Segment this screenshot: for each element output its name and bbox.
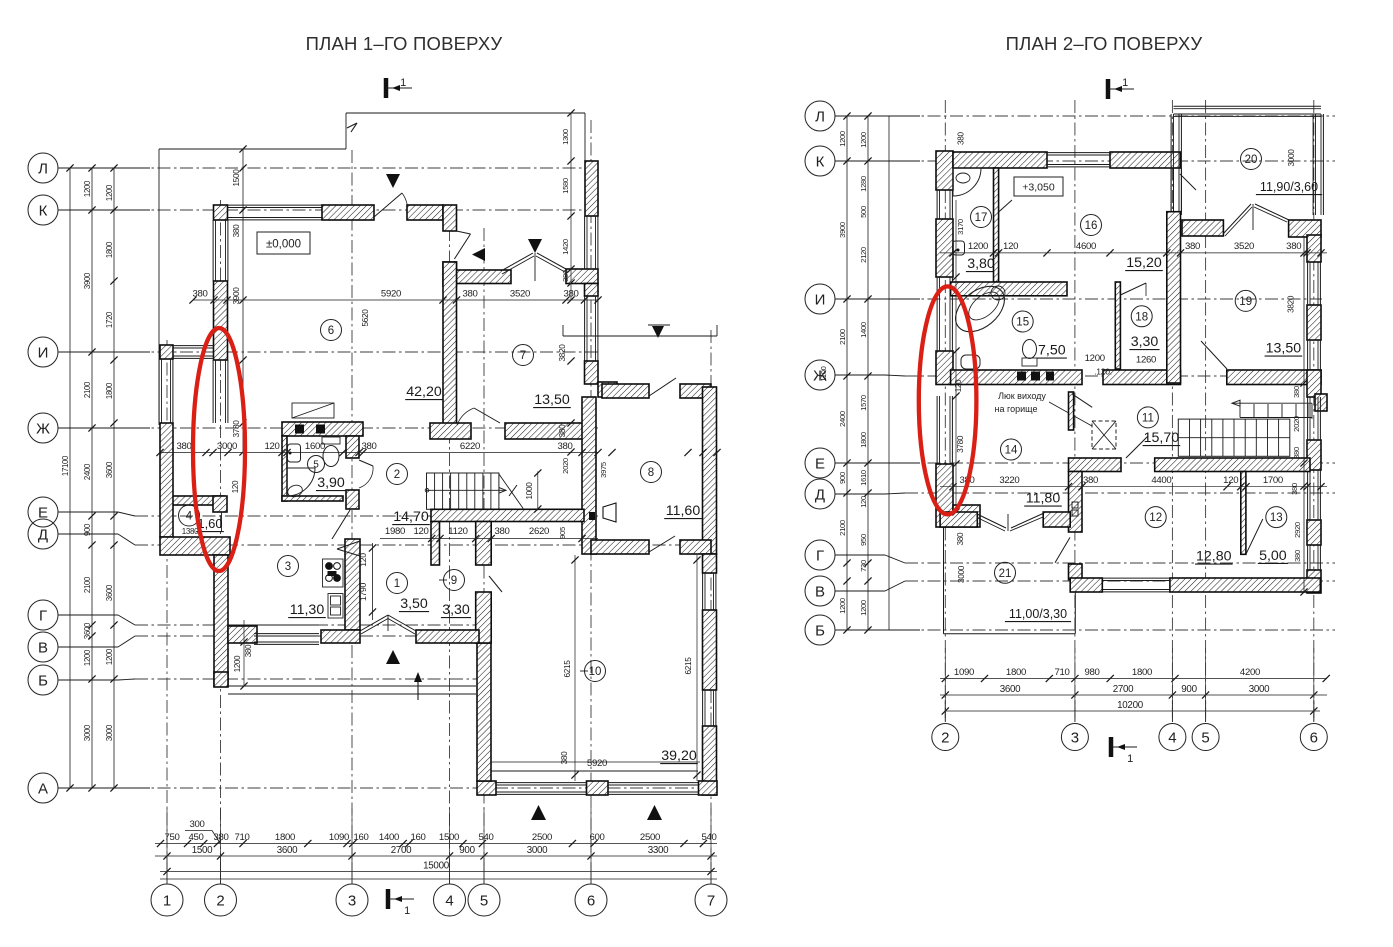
svg-text:980: 980	[1084, 667, 1099, 678]
svg-text:900: 900	[83, 523, 92, 536]
svg-text:4: 4	[445, 892, 453, 909]
svg-text:1100: 1100	[819, 366, 828, 381]
svg-text:120: 120	[1003, 241, 1018, 252]
svg-text:И: И	[38, 344, 49, 361]
svg-text:540: 540	[478, 832, 493, 843]
svg-text:380: 380	[1292, 447, 1301, 459]
svg-text:5: 5	[313, 460, 319, 471]
svg-text:3900: 3900	[838, 222, 847, 238]
svg-text:11,80: 11,80	[1026, 491, 1061, 507]
svg-text:380: 380	[558, 424, 567, 438]
svg-text:7,50: 7,50	[1038, 343, 1066, 359]
svg-text:3900: 3900	[232, 287, 241, 305]
svg-text:8: 8	[648, 467, 654, 479]
svg-text:3820: 3820	[1287, 295, 1296, 313]
svg-text:3: 3	[285, 561, 291, 573]
svg-text:380: 380	[1292, 386, 1301, 398]
svg-text:380: 380	[1286, 241, 1301, 252]
svg-text:1400: 1400	[379, 832, 399, 843]
svg-text:3: 3	[1071, 729, 1079, 746]
svg-text:ПЛАН 2–ГО ПОВЕРХУ: ПЛАН 2–ГО ПОВЕРХУ	[1006, 33, 1203, 54]
svg-text:5: 5	[1201, 729, 1209, 746]
svg-text:120: 120	[264, 441, 279, 452]
svg-text:ПЛАН 1–ГО ПОВЕРХУ: ПЛАН 1–ГО ПОВЕРХУ	[306, 33, 503, 54]
svg-text:3,50: 3,50	[400, 596, 428, 612]
svg-text:4400: 4400	[1151, 475, 1171, 486]
svg-text:2620: 2620	[529, 526, 549, 537]
svg-text:4600: 4600	[1076, 241, 1096, 252]
svg-text:2020: 2020	[561, 458, 570, 474]
svg-text:1280: 1280	[859, 176, 868, 192]
svg-text:1800: 1800	[1006, 667, 1026, 678]
svg-text:1: 1	[163, 892, 171, 909]
svg-text:1420: 1420	[561, 239, 570, 255]
svg-text:3000: 3000	[527, 845, 548, 856]
svg-text:1700: 1700	[1263, 475, 1283, 486]
svg-text:+3,050: +3,050	[1022, 182, 1055, 194]
svg-text:3,80: 3,80	[967, 256, 995, 272]
svg-text:1980: 1980	[385, 526, 405, 537]
svg-text:3520: 3520	[1234, 241, 1254, 252]
svg-text:3,90: 3,90	[317, 475, 345, 491]
svg-text:на горище: на горище	[995, 404, 1038, 414]
svg-text:1800: 1800	[859, 432, 868, 448]
svg-text:1800: 1800	[1132, 667, 1152, 678]
svg-text:2100: 2100	[838, 520, 847, 536]
svg-text:120: 120	[231, 480, 240, 493]
svg-text:1090: 1090	[329, 832, 349, 843]
svg-text:1200: 1200	[233, 655, 242, 672]
svg-text:120: 120	[859, 496, 868, 508]
svg-text:2: 2	[941, 729, 949, 746]
svg-text:Б: Б	[38, 672, 48, 689]
svg-text:11,00/3,30: 11,00/3,30	[1009, 607, 1067, 621]
svg-text:3600: 3600	[105, 461, 114, 478]
svg-text:Л: Л	[815, 108, 825, 125]
svg-text:3520: 3520	[510, 289, 530, 300]
svg-text:1800: 1800	[105, 382, 114, 399]
svg-text:380: 380	[494, 526, 509, 537]
svg-text:3000: 3000	[217, 441, 237, 452]
svg-text:540: 540	[701, 832, 716, 843]
svg-text:Д: Д	[815, 486, 825, 503]
svg-text:2400: 2400	[83, 463, 92, 480]
svg-text:1200: 1200	[859, 132, 868, 148]
svg-text:3600: 3600	[277, 845, 298, 856]
svg-text:710: 710	[234, 832, 249, 843]
svg-text:380: 380	[361, 441, 376, 452]
svg-text:5920: 5920	[381, 289, 401, 300]
svg-text:900: 900	[459, 845, 475, 856]
svg-text:10200: 10200	[1117, 700, 1144, 711]
svg-text:Г: Г	[816, 547, 824, 564]
svg-text:Л: Л	[38, 160, 48, 177]
svg-text:1500: 1500	[232, 169, 241, 187]
svg-text:5920: 5920	[587, 758, 607, 769]
svg-text:10: 10	[589, 666, 602, 678]
svg-text:6: 6	[328, 325, 334, 337]
svg-text:2400: 2400	[838, 411, 847, 427]
svg-text:900: 900	[1181, 684, 1197, 695]
svg-text:3900: 3900	[83, 272, 92, 289]
svg-text:3975: 3975	[599, 462, 608, 478]
svg-text:2020: 2020	[1292, 416, 1301, 432]
svg-text:1: 1	[1122, 77, 1128, 89]
svg-text:12: 12	[1149, 512, 1162, 524]
svg-text:6220: 6220	[460, 441, 480, 452]
svg-text:14,70: 14,70	[393, 509, 429, 525]
svg-text:380: 380	[956, 131, 965, 145]
svg-text:950: 950	[859, 534, 868, 546]
svg-text:21: 21	[999, 568, 1012, 580]
svg-text:1570: 1570	[859, 395, 868, 411]
svg-text:2100: 2100	[83, 381, 92, 398]
svg-text:2700: 2700	[391, 845, 412, 856]
svg-text:11,30: 11,30	[290, 602, 325, 618]
svg-text:7: 7	[707, 892, 715, 909]
svg-text:1610: 1610	[859, 470, 868, 486]
svg-text:К: К	[816, 153, 825, 170]
svg-text:15: 15	[1016, 317, 1029, 329]
svg-text:17100: 17100	[61, 455, 70, 476]
svg-text:120: 120	[1223, 475, 1238, 486]
svg-text:11,60: 11,60	[666, 503, 701, 519]
svg-text:15,20: 15,20	[1126, 255, 1162, 271]
svg-text:3780: 3780	[956, 435, 965, 453]
svg-text:1580: 1580	[561, 178, 570, 194]
svg-text:380: 380	[176, 441, 191, 452]
svg-text:1200: 1200	[105, 184, 114, 201]
svg-text:Ж: Ж	[36, 420, 50, 437]
svg-text:14: 14	[1005, 445, 1018, 457]
svg-text:160: 160	[410, 832, 425, 843]
svg-text:А: А	[38, 780, 48, 797]
svg-text:3820: 3820	[558, 344, 567, 362]
svg-text:1800: 1800	[275, 832, 295, 843]
svg-text:600: 600	[589, 832, 604, 843]
svg-text:1: 1	[394, 578, 400, 590]
svg-text:380: 380	[561, 270, 570, 282]
svg-text:2700: 2700	[1113, 684, 1134, 695]
svg-text:2100: 2100	[838, 329, 847, 345]
svg-text:Б: Б	[815, 622, 825, 639]
svg-text:5,00: 5,00	[1259, 548, 1287, 564]
svg-text:В: В	[38, 639, 48, 656]
svg-text:±0,000: ±0,000	[266, 239, 301, 251]
svg-text:120: 120	[413, 526, 428, 537]
svg-text:39,20: 39,20	[661, 748, 697, 764]
svg-text:3220: 3220	[999, 475, 1019, 486]
svg-text:4: 4	[1168, 729, 1176, 746]
svg-text:160: 160	[353, 832, 368, 843]
svg-text:12,80: 12,80	[1196, 549, 1232, 565]
svg-text:500: 500	[859, 206, 868, 218]
svg-text:2920: 2920	[1293, 522, 1302, 538]
svg-text:1800: 1800	[105, 241, 114, 258]
svg-text:1200: 1200	[838, 598, 847, 614]
svg-text:1120: 1120	[448, 526, 467, 537]
svg-text:6: 6	[587, 892, 595, 909]
svg-text:11: 11	[1142, 413, 1154, 425]
svg-text:3300: 3300	[648, 845, 669, 856]
svg-text:4: 4	[186, 511, 193, 523]
svg-text:1200: 1200	[1085, 353, 1105, 364]
svg-text:Люк виходу: Люк виходу	[998, 391, 1046, 401]
svg-text:1: 1	[1127, 753, 1133, 765]
svg-text:2100: 2100	[83, 576, 92, 593]
svg-text:380: 380	[462, 289, 477, 300]
svg-text:2: 2	[216, 892, 224, 909]
svg-text:3000: 3000	[83, 724, 92, 741]
svg-text:3170: 3170	[956, 219, 965, 235]
svg-text:1090: 1090	[954, 667, 974, 678]
svg-text:3600: 3600	[1000, 684, 1021, 695]
svg-text:2: 2	[394, 469, 400, 481]
svg-text:3: 3	[348, 892, 356, 909]
svg-text:1720: 1720	[105, 311, 114, 328]
svg-text:К: К	[39, 202, 48, 219]
svg-text:5: 5	[480, 892, 488, 909]
svg-text:15,70: 15,70	[1144, 430, 1180, 446]
svg-text:И: И	[815, 291, 826, 308]
svg-text:13,50: 13,50	[534, 392, 570, 408]
svg-text:380: 380	[1293, 550, 1302, 562]
svg-text:18: 18	[1135, 311, 1148, 323]
svg-text:120: 120	[358, 553, 368, 567]
svg-text:.120.: .120.	[1094, 367, 1112, 377]
svg-text:3000: 3000	[1287, 149, 1296, 167]
svg-text:2500: 2500	[640, 832, 660, 843]
svg-text:13,50: 13,50	[1266, 341, 1302, 357]
svg-text:2500: 2500	[532, 832, 552, 843]
svg-text:1500: 1500	[439, 832, 459, 843]
svg-text:1200: 1200	[838, 131, 847, 147]
svg-text:1200: 1200	[83, 649, 92, 666]
svg-text:20: 20	[1245, 154, 1258, 166]
svg-text:3600: 3600	[105, 584, 114, 601]
svg-text:3780: 3780	[232, 420, 241, 438]
svg-text:6: 6	[1310, 729, 1318, 746]
svg-text:В: В	[815, 583, 825, 600]
svg-text:1380: 1380	[182, 527, 199, 536]
svg-text:1: 1	[404, 905, 410, 917]
svg-text:1600: 1600	[305, 441, 325, 452]
svg-text:3000: 3000	[1249, 684, 1270, 695]
svg-text:300: 300	[189, 819, 204, 830]
svg-text:1500: 1500	[192, 845, 213, 856]
svg-text:120: 120	[954, 379, 963, 392]
svg-text:1200: 1200	[968, 241, 988, 252]
svg-text:730: 730	[859, 560, 868, 572]
svg-text:2120: 2120	[859, 247, 868, 263]
svg-text:380: 380	[244, 644, 253, 657]
svg-text:17: 17	[975, 212, 988, 224]
svg-text:380: 380	[213, 832, 228, 843]
svg-text:4200: 4200	[1240, 667, 1260, 678]
svg-text:450: 450	[188, 832, 203, 843]
svg-text:1300: 1300	[561, 129, 570, 145]
svg-text:1: 1	[400, 77, 406, 89]
svg-text:Е: Е	[815, 455, 825, 472]
svg-text:1200: 1200	[105, 648, 114, 665]
svg-text:19: 19	[1239, 296, 1252, 308]
svg-text:380: 380	[560, 751, 569, 765]
svg-text:9: 9	[451, 575, 457, 587]
svg-text:1000: 1000	[525, 482, 534, 500]
svg-text:3,30: 3,30	[1131, 334, 1159, 350]
svg-text:1200: 1200	[83, 180, 92, 197]
svg-text:380: 380	[232, 224, 241, 238]
svg-text:3000: 3000	[105, 724, 114, 741]
svg-text:3600: 3600	[83, 622, 92, 639]
svg-text:13: 13	[1270, 512, 1283, 524]
svg-text:5620: 5620	[361, 309, 370, 327]
svg-text:380: 380	[1290, 483, 1299, 495]
svg-text:1400: 1400	[859, 322, 868, 338]
svg-text:380: 380	[1185, 241, 1200, 252]
svg-text:1790: 1790	[358, 583, 368, 601]
svg-text:380: 380	[956, 532, 965, 546]
svg-text:900: 900	[838, 472, 847, 484]
svg-text:6215: 6215	[684, 657, 693, 675]
svg-text:710: 710	[1054, 667, 1069, 678]
svg-text:1260: 1260	[1136, 355, 1156, 366]
svg-text:16: 16	[1085, 220, 1098, 232]
svg-text:42,20: 42,20	[406, 384, 442, 400]
svg-text:3,30: 3,30	[442, 602, 470, 618]
svg-text:905: 905	[558, 527, 567, 539]
svg-text:Д: Д	[38, 526, 48, 543]
svg-text:7: 7	[520, 350, 526, 362]
svg-text:1200: 1200	[859, 600, 868, 616]
svg-text:3000: 3000	[957, 565, 966, 583]
svg-text:Г: Г	[39, 607, 47, 624]
svg-text:6215: 6215	[563, 660, 572, 678]
svg-text:11,90/3,60: 11,90/3,60	[1260, 180, 1318, 194]
svg-text:15000: 15000	[423, 861, 450, 872]
svg-text:380: 380	[557, 441, 572, 452]
